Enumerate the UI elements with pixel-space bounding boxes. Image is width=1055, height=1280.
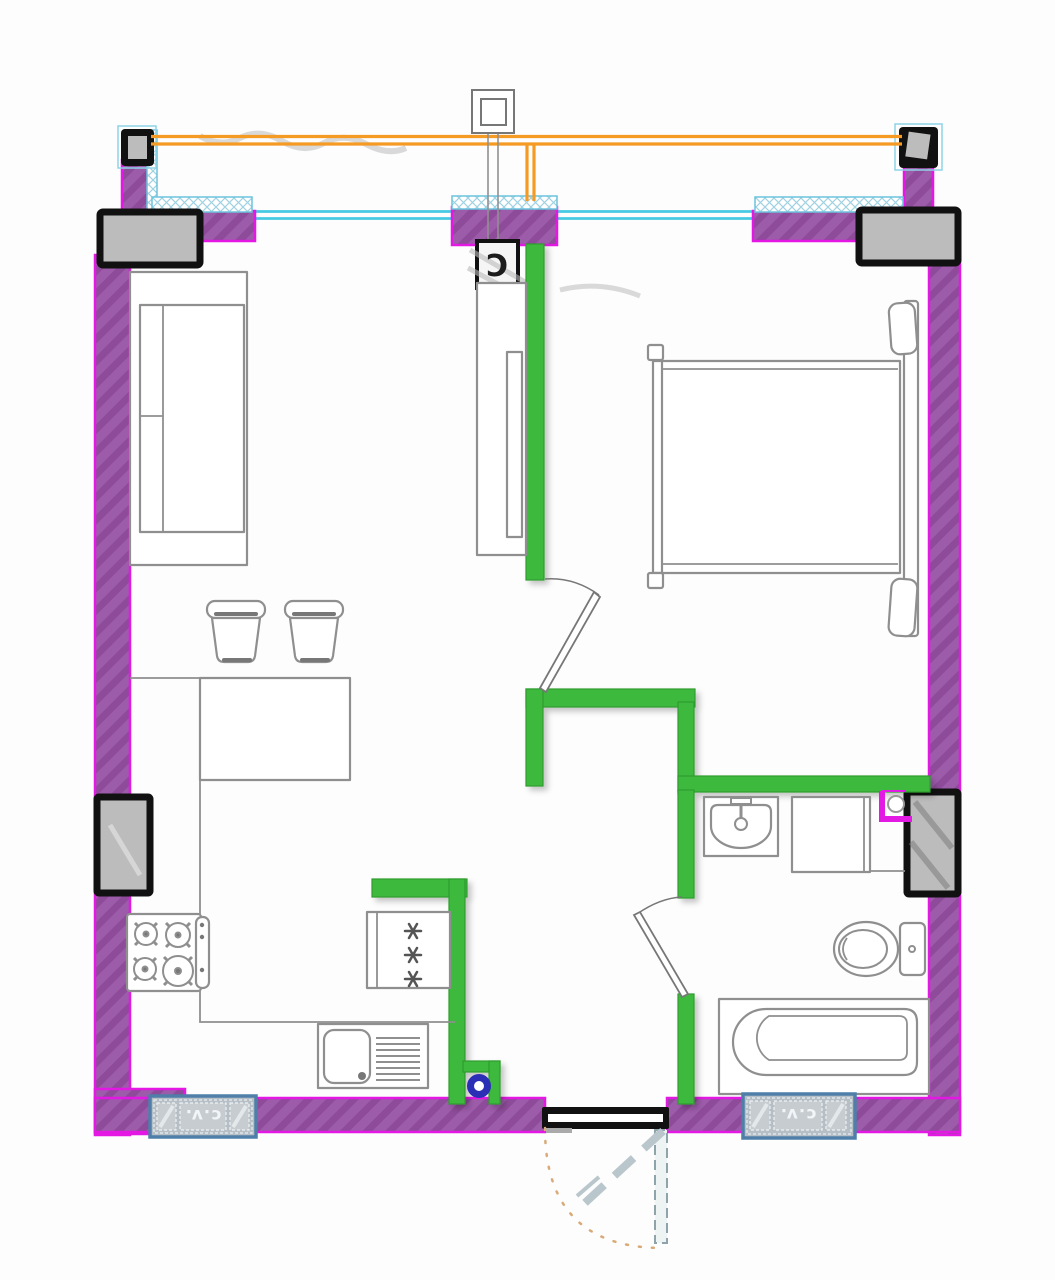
floor-plan-drawing: C [0,0,1055,1280]
entrance-door [542,1107,669,1248]
wall-topright-sill [753,211,858,241]
stool-2 [285,601,343,662]
toilet [834,922,925,976]
partition-bathroom-top [678,776,930,792]
pillow-bottom [888,578,918,637]
radiator-right-label: c.v. [780,1104,817,1124]
wall-left [95,255,130,1135]
partition-hall-top [526,689,695,707]
partition-bathroom-left-lower [678,994,694,1104]
electrical-line [151,137,902,202]
wall-right [929,260,960,1135]
pillow-top [888,302,917,355]
partition-shaft-right [489,1061,500,1104]
floor-drain-icon [471,1078,488,1095]
refrigerator-freezer [367,912,450,988]
partition-hall-left [526,689,543,786]
washbasin [704,797,778,856]
window-hatch-bands [147,130,903,212]
double-bed [648,301,918,637]
washing-machine [792,797,905,872]
bathtub [719,999,929,1094]
bathroom-door [634,897,688,997]
valve-icon [888,796,904,812]
column-topleft [100,212,200,265]
partition-bathroom-left-upper [678,790,694,898]
duct-marker-label: C [486,249,508,284]
radiator-left: c.v. [150,1096,256,1137]
floor-plan: C [0,0,1055,1280]
radiator-right: c.v. [743,1094,855,1138]
dining-table [200,678,350,780]
sofa [130,272,247,565]
column-topright [859,210,958,263]
gas-stove [127,914,209,991]
stool-1 [207,601,265,662]
partition-bedroom [526,244,544,580]
wardrobe [477,283,526,555]
radiator-left-label: c.v. [185,1105,222,1125]
kitchen-sink [318,1024,428,1088]
bedroom-door [540,579,600,692]
stools [207,601,343,662]
door-leaf-open [655,1130,667,1243]
wall-topleft-sill [197,211,255,241]
